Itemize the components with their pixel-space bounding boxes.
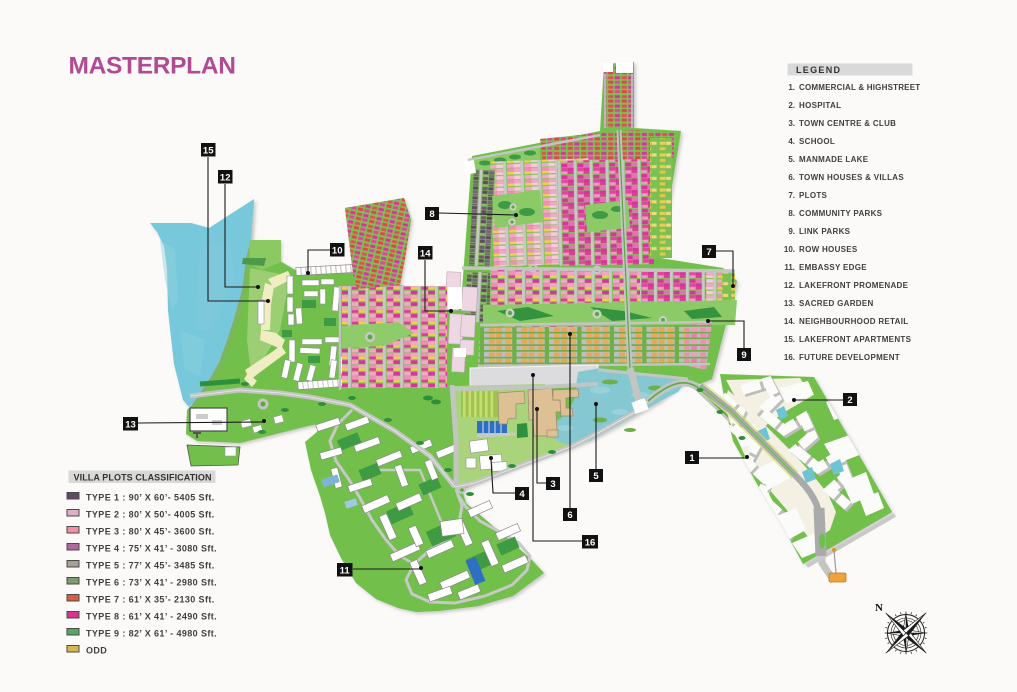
- svg-text:6.: 6.: [788, 173, 795, 182]
- svg-text:3: 3: [550, 479, 555, 490]
- svg-text:12: 12: [220, 173, 231, 184]
- svg-text:TYPE 6 : 73’ X 41’ - 2980 Sft: TYPE 6 : 73’ X 41’ - 2980 Sft.: [86, 578, 217, 588]
- svg-text:LINK PARKS: LINK PARKS: [799, 227, 851, 236]
- svg-text:COMMERCIAL & HIGHSTREET: COMMERCIAL & HIGHSTREET: [799, 83, 920, 92]
- svg-text:ROW HOUSES: ROW HOUSES: [799, 245, 858, 254]
- svg-text:TYPE 2 : 80’ X 50’- 4005 Sft.: TYPE 2 : 80’ X 50’- 4005 Sft.: [86, 510, 215, 520]
- svg-text:TYPE 1 : 90’ X 60’- 5405 Sft.: TYPE 1 : 90’ X 60’- 5405 Sft.: [86, 493, 215, 503]
- svg-text:MANMADE LAKE: MANMADE LAKE: [799, 155, 869, 164]
- svg-text:VILLA PLOTS CLASSIFICATION: VILLA PLOTS CLASSIFICATION: [74, 472, 212, 482]
- svg-text:11.: 11.: [784, 263, 795, 272]
- svg-text:LAKEFRONT APARTMENTS: LAKEFRONT APARTMENTS: [799, 335, 912, 344]
- svg-text:TYPE 4 : 75’ X 41’ - 3080 Sft: TYPE 4 : 75’ X 41’ - 3080 Sft.: [86, 544, 217, 554]
- svg-text:14: 14: [420, 249, 431, 260]
- svg-text:10.: 10.: [784, 245, 795, 254]
- svg-text:TYPE 8 : 61’ X 41’ - 2490 Sft: TYPE 8 : 61’ X 41’ - 2490 Sft.: [86, 612, 217, 622]
- svg-text:14.: 14.: [784, 317, 795, 326]
- svg-text:4.: 4.: [788, 137, 795, 146]
- svg-text:LEGEND: LEGEND: [796, 65, 841, 75]
- svg-text:3.: 3.: [788, 119, 795, 128]
- svg-text:TYPE 3 : 80’ X 45’- 3600 Sft.: TYPE 3 : 80’ X 45’- 3600 Sft.: [86, 527, 215, 537]
- svg-text:PLOTS: PLOTS: [799, 191, 828, 200]
- svg-text:N: N: [875, 602, 883, 614]
- svg-text:13: 13: [125, 420, 136, 431]
- svg-text:9: 9: [741, 350, 746, 361]
- svg-text:5.: 5.: [788, 155, 795, 164]
- svg-text:EMBASSY EDGE: EMBASSY EDGE: [799, 263, 867, 272]
- svg-text:TOWN HOUSES & VILLAS: TOWN HOUSES & VILLAS: [799, 173, 904, 182]
- svg-text:15.: 15.: [784, 335, 795, 344]
- svg-text:9.: 9.: [788, 227, 795, 236]
- svg-text:4: 4: [519, 489, 525, 500]
- svg-text:COMMUNITY PARKS: COMMUNITY PARKS: [799, 209, 883, 218]
- svg-text:LAKEFRONT PROMENADE: LAKEFRONT PROMENADE: [799, 281, 909, 290]
- svg-text:TYPE 7 : 61’ X 35’- 2130 Sft: TYPE 7 : 61’ X 35’- 2130 Sft.: [86, 595, 215, 605]
- svg-text:2.: 2.: [788, 101, 795, 110]
- svg-text:8: 8: [429, 209, 434, 220]
- svg-text:8.: 8.: [788, 209, 795, 218]
- svg-text:15: 15: [203, 146, 214, 157]
- svg-text:TOWN CENTRE & CLUB: TOWN CENTRE & CLUB: [799, 119, 896, 128]
- svg-text:11: 11: [340, 566, 351, 577]
- svg-text:HOSPITAL: HOSPITAL: [799, 101, 841, 110]
- svg-text:NEIGHBOURHOOD RETAIL: NEIGHBOURHOOD RETAIL: [799, 317, 908, 326]
- svg-text:7: 7: [706, 247, 711, 258]
- svg-text:MASTERPLAN: MASTERPLAN: [69, 53, 236, 80]
- svg-text:6: 6: [567, 510, 572, 521]
- svg-text:1.: 1.: [788, 83, 795, 92]
- svg-text:16.: 16.: [784, 353, 795, 362]
- svg-text:FUTURE DEVELOPMENT: FUTURE DEVELOPMENT: [799, 353, 900, 362]
- svg-text:7.: 7.: [788, 191, 795, 200]
- svg-text:SACRED GARDEN: SACRED GARDEN: [799, 299, 874, 308]
- svg-text:ODD: ODD: [86, 646, 107, 656]
- svg-text:5: 5: [593, 471, 599, 482]
- svg-text:13.: 13.: [784, 299, 795, 308]
- svg-text:2: 2: [847, 395, 852, 406]
- svg-text:TYPE 9 : 82’ X 61’ - 4980 Sft.: TYPE 9 : 82’ X 61’ - 4980 Sft.: [86, 629, 217, 639]
- svg-text:1: 1: [689, 453, 695, 464]
- svg-text:10: 10: [332, 246, 343, 257]
- svg-text:SCHOOL: SCHOOL: [799, 137, 835, 146]
- svg-text:12.: 12.: [784, 281, 795, 290]
- svg-text:TYPE 5 : 77’ X 45’- 3485 Sft.: TYPE 5 : 77’ X 45’- 3485 Sft.: [86, 561, 215, 571]
- svg-text:16: 16: [585, 538, 596, 549]
